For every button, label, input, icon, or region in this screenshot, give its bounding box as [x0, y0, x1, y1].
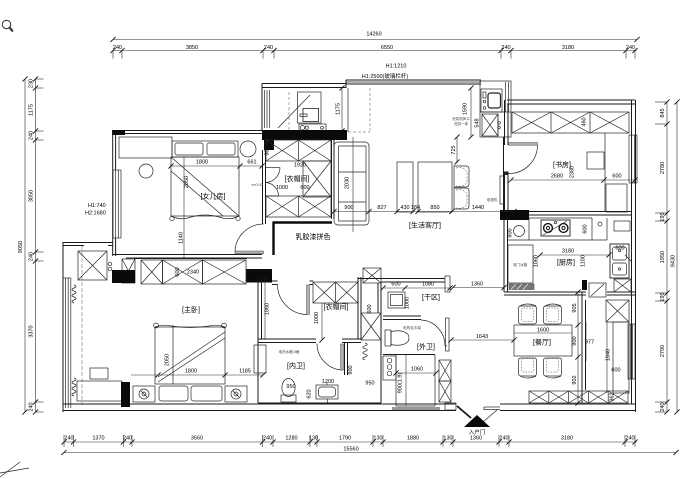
svg-text:600: 600: [175, 267, 181, 276]
svg-text:1140: 1140: [179, 232, 185, 244]
svg-text:1920: 1920: [294, 163, 306, 169]
svg-text:240: 240: [660, 402, 666, 411]
svg-text:电视机: 电视机: [487, 197, 498, 202]
svg-text:[衣帽间]: [衣帽间]: [324, 302, 349, 311]
svg-text:2030: 2030: [345, 177, 351, 189]
svg-text:[书房]: [书房]: [553, 160, 571, 169]
svg-text:[干区]: [干区]: [422, 294, 440, 302]
svg-text:1643: 1643: [476, 334, 488, 340]
svg-text:9430: 9430: [671, 255, 677, 267]
svg-text:2780: 2780: [660, 162, 666, 174]
svg-text:1100: 1100: [581, 255, 587, 267]
svg-text:1800: 1800: [185, 369, 197, 375]
svg-text:1060: 1060: [411, 367, 423, 373]
svg-text:240: 240: [64, 436, 73, 442]
svg-text:900: 900: [572, 336, 578, 345]
svg-text:1950: 1950: [660, 251, 666, 263]
svg-text:600: 600: [367, 304, 373, 313]
svg-text:[外卫]: [外卫]: [417, 342, 435, 351]
svg-text:240: 240: [501, 45, 510, 51]
svg-text:2790: 2790: [660, 345, 666, 357]
svg-text:1600: 1600: [537, 328, 549, 334]
svg-text:130: 130: [309, 436, 318, 442]
svg-text:130: 130: [443, 436, 452, 442]
svg-text:240: 240: [123, 436, 132, 442]
svg-text:1200: 1200: [322, 379, 334, 385]
svg-text:800: 800: [508, 228, 514, 237]
svg-text:1880: 1880: [407, 436, 419, 442]
svg-text:1175: 1175: [29, 104, 35, 116]
svg-text:2050: 2050: [184, 176, 190, 188]
svg-text:950: 950: [286, 384, 295, 390]
svg-text:双门冰箱: 双门冰箱: [513, 262, 528, 267]
svg-text:600: 600: [391, 282, 400, 288]
svg-text:2050: 2050: [165, 354, 171, 366]
svg-text:827: 827: [377, 205, 386, 211]
svg-text:1080: 1080: [422, 282, 434, 288]
svg-text:e±0.00: e±0.00: [252, 183, 263, 187]
svg-text:240: 240: [29, 402, 35, 411]
svg-text:14260: 14260: [366, 32, 381, 38]
svg-text:3560: 3560: [191, 436, 203, 442]
svg-text:950: 950: [365, 381, 374, 387]
svg-text:195: 195: [660, 292, 666, 301]
svg-text:3180: 3180: [562, 45, 574, 51]
svg-text:725: 725: [451, 145, 457, 154]
svg-text:130: 130: [373, 436, 382, 442]
svg-text:[衣帽间]: [衣帽间]: [285, 174, 310, 183]
svg-text:195: 195: [660, 212, 666, 221]
svg-text:电热毛巾架: 电热毛巾架: [403, 325, 421, 330]
svg-text:[厨房]: [厨房]: [557, 258, 575, 267]
svg-text:[生活客厅]: [生活客厅]: [409, 221, 441, 230]
svg-text:入户门: 入户门: [469, 428, 486, 436]
svg-text:乳胶漆拼色: 乳胶漆拼色: [296, 232, 331, 241]
svg-text:1280: 1280: [285, 436, 297, 442]
svg-text:600: 600: [612, 174, 621, 180]
svg-text:240: 240: [625, 436, 634, 442]
svg-text:1000: 1000: [314, 312, 320, 324]
svg-text:2380: 2380: [570, 166, 576, 178]
svg-text:900: 900: [344, 205, 353, 211]
svg-text:240: 240: [264, 45, 273, 51]
svg-text:240: 240: [29, 252, 35, 261]
svg-text:1860: 1860: [265, 303, 271, 315]
svg-text:H1:740: H1:740: [88, 203, 106, 209]
svg-text:620: 620: [307, 389, 313, 398]
svg-text:3180: 3180: [562, 249, 574, 255]
svg-text:1060: 1060: [534, 255, 540, 267]
svg-text:661: 661: [247, 160, 256, 166]
svg-text:300: 300: [265, 146, 271, 155]
svg-text:3850: 3850: [186, 45, 198, 51]
svg-text:600: 600: [611, 368, 620, 374]
svg-text:3180: 3180: [561, 436, 573, 442]
svg-text:1185: 1185: [239, 369, 251, 375]
svg-text:2340: 2340: [187, 270, 199, 276]
svg-text:H1:2500(玻璃栏杆): H1:2500(玻璃栏杆): [362, 72, 409, 80]
svg-text:900(1.9): 900(1.9): [398, 373, 404, 394]
svg-text:600: 600: [615, 246, 624, 252]
svg-text:850: 850: [430, 205, 439, 211]
svg-text:902: 902: [572, 375, 578, 384]
svg-text:1000: 1000: [405, 297, 411, 309]
svg-text:洗烘一体: 洗烘一体: [454, 121, 469, 126]
svg-text:1800: 1800: [196, 160, 208, 166]
svg-text:3370: 3370: [29, 325, 35, 337]
svg-text:[内卫]: [内卫]: [287, 361, 305, 370]
svg-text:3050: 3050: [29, 190, 35, 202]
svg-text:977: 977: [585, 340, 594, 346]
svg-text:600: 600: [583, 224, 589, 233]
svg-text:[女儿房]: [女儿房]: [201, 192, 226, 201]
svg-text:1370: 1370: [92, 436, 104, 442]
svg-text:548: 548: [475, 118, 481, 127]
svg-text:1360: 1360: [471, 282, 483, 288]
svg-text:230: 230: [29, 79, 35, 88]
svg-text:900: 900: [348, 365, 354, 374]
svg-text:电热水器 8格: 电热水器 8格: [279, 349, 300, 354]
svg-text:6550: 6550: [381, 45, 393, 51]
svg-text:600: 600: [300, 185, 309, 191]
svg-text:1440: 1440: [472, 205, 484, 211]
svg-text:430: 430: [400, 205, 409, 211]
svg-text:240: 240: [29, 131, 35, 140]
svg-text:H1:1210: H1:1210: [386, 64, 407, 70]
svg-text:1840: 1840: [606, 349, 612, 361]
svg-text:15560: 15560: [343, 447, 358, 453]
svg-text:240: 240: [263, 436, 272, 442]
svg-text:845: 845: [660, 108, 666, 117]
svg-text:1000: 1000: [276, 185, 288, 191]
svg-text:240: 240: [499, 436, 508, 442]
svg-text:1590: 1590: [463, 103, 469, 115]
svg-text:洗烘机风斗: 洗烘机风斗: [452, 116, 470, 121]
svg-text:905: 905: [572, 303, 578, 312]
svg-text:460: 460: [582, 117, 588, 126]
svg-text:240: 240: [626, 45, 635, 51]
svg-text:[餐厅]: [餐厅]: [533, 338, 551, 347]
svg-text:2680: 2680: [551, 174, 563, 180]
svg-text:H2:1680: H2:1680: [85, 211, 106, 217]
svg-text:184: 184: [411, 205, 420, 211]
svg-text:9050: 9050: [18, 241, 24, 253]
svg-text:1360: 1360: [470, 436, 482, 442]
svg-text:240: 240: [113, 45, 122, 51]
svg-text:1790: 1790: [339, 436, 351, 442]
svg-text:1175: 1175: [336, 103, 342, 115]
svg-text:[主卧]: [主卧]: [182, 305, 200, 314]
